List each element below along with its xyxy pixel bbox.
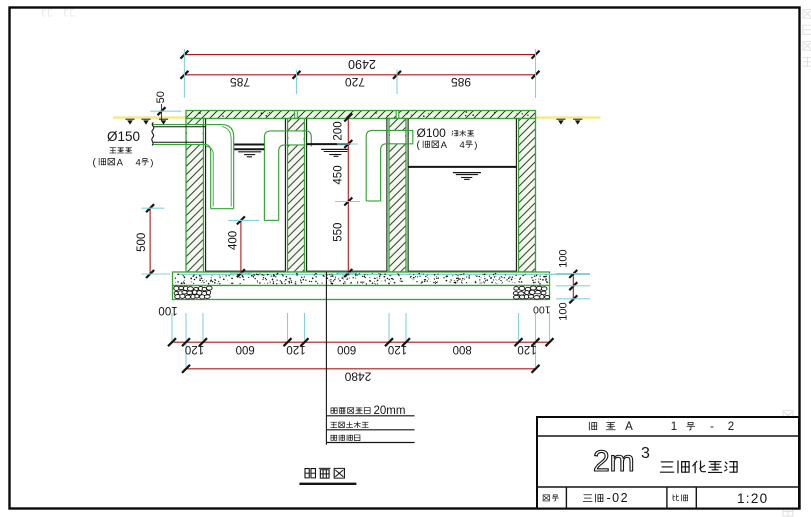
svg-text:1:20: 1:20 (737, 491, 768, 506)
svg-text:120: 120 (286, 343, 305, 355)
svg-text:4: 4 (460, 140, 465, 151)
svg-text:Ø150: Ø150 (107, 129, 140, 144)
svg-text:120: 120 (517, 343, 536, 355)
svg-text:50: 50 (155, 91, 167, 103)
svg-text:Ø100: Ø100 (417, 126, 447, 140)
svg-text:785: 785 (230, 75, 250, 89)
svg-text:1: 1 (671, 421, 677, 433)
svg-text:550: 550 (332, 223, 344, 242)
svg-text:120: 120 (185, 343, 204, 355)
svg-text:-: - (710, 421, 714, 433)
svg-text:A: A (441, 140, 448, 151)
svg-text:120: 120 (388, 343, 407, 355)
svg-text:800: 800 (453, 343, 472, 355)
svg-text:100: 100 (158, 304, 177, 316)
svg-text:2490: 2490 (348, 57, 376, 71)
svg-text:-02: -02 (607, 491, 630, 505)
svg-text:100: 100 (558, 249, 570, 267)
svg-text:400: 400 (227, 231, 239, 250)
svg-text:A: A (117, 158, 124, 169)
svg-text:720: 720 (345, 75, 365, 89)
svg-text:450: 450 (332, 165, 344, 184)
svg-text:600: 600 (337, 343, 356, 355)
svg-text:): ) (150, 158, 153, 169)
svg-text:2m: 2m (593, 445, 635, 478)
svg-text:4: 4 (136, 158, 141, 169)
svg-text:3: 3 (641, 445, 650, 462)
svg-text:A: A (625, 421, 633, 433)
svg-text:2480: 2480 (344, 369, 371, 383)
svg-text:): ) (474, 140, 477, 151)
svg-text:2: 2 (728, 421, 734, 433)
svg-text:200: 200 (332, 121, 344, 140)
svg-text:100: 100 (558, 302, 570, 320)
svg-text:500: 500 (136, 233, 148, 252)
svg-text:100: 100 (533, 303, 551, 315)
svg-text:600: 600 (236, 343, 255, 355)
svg-text:985: 985 (451, 75, 471, 89)
